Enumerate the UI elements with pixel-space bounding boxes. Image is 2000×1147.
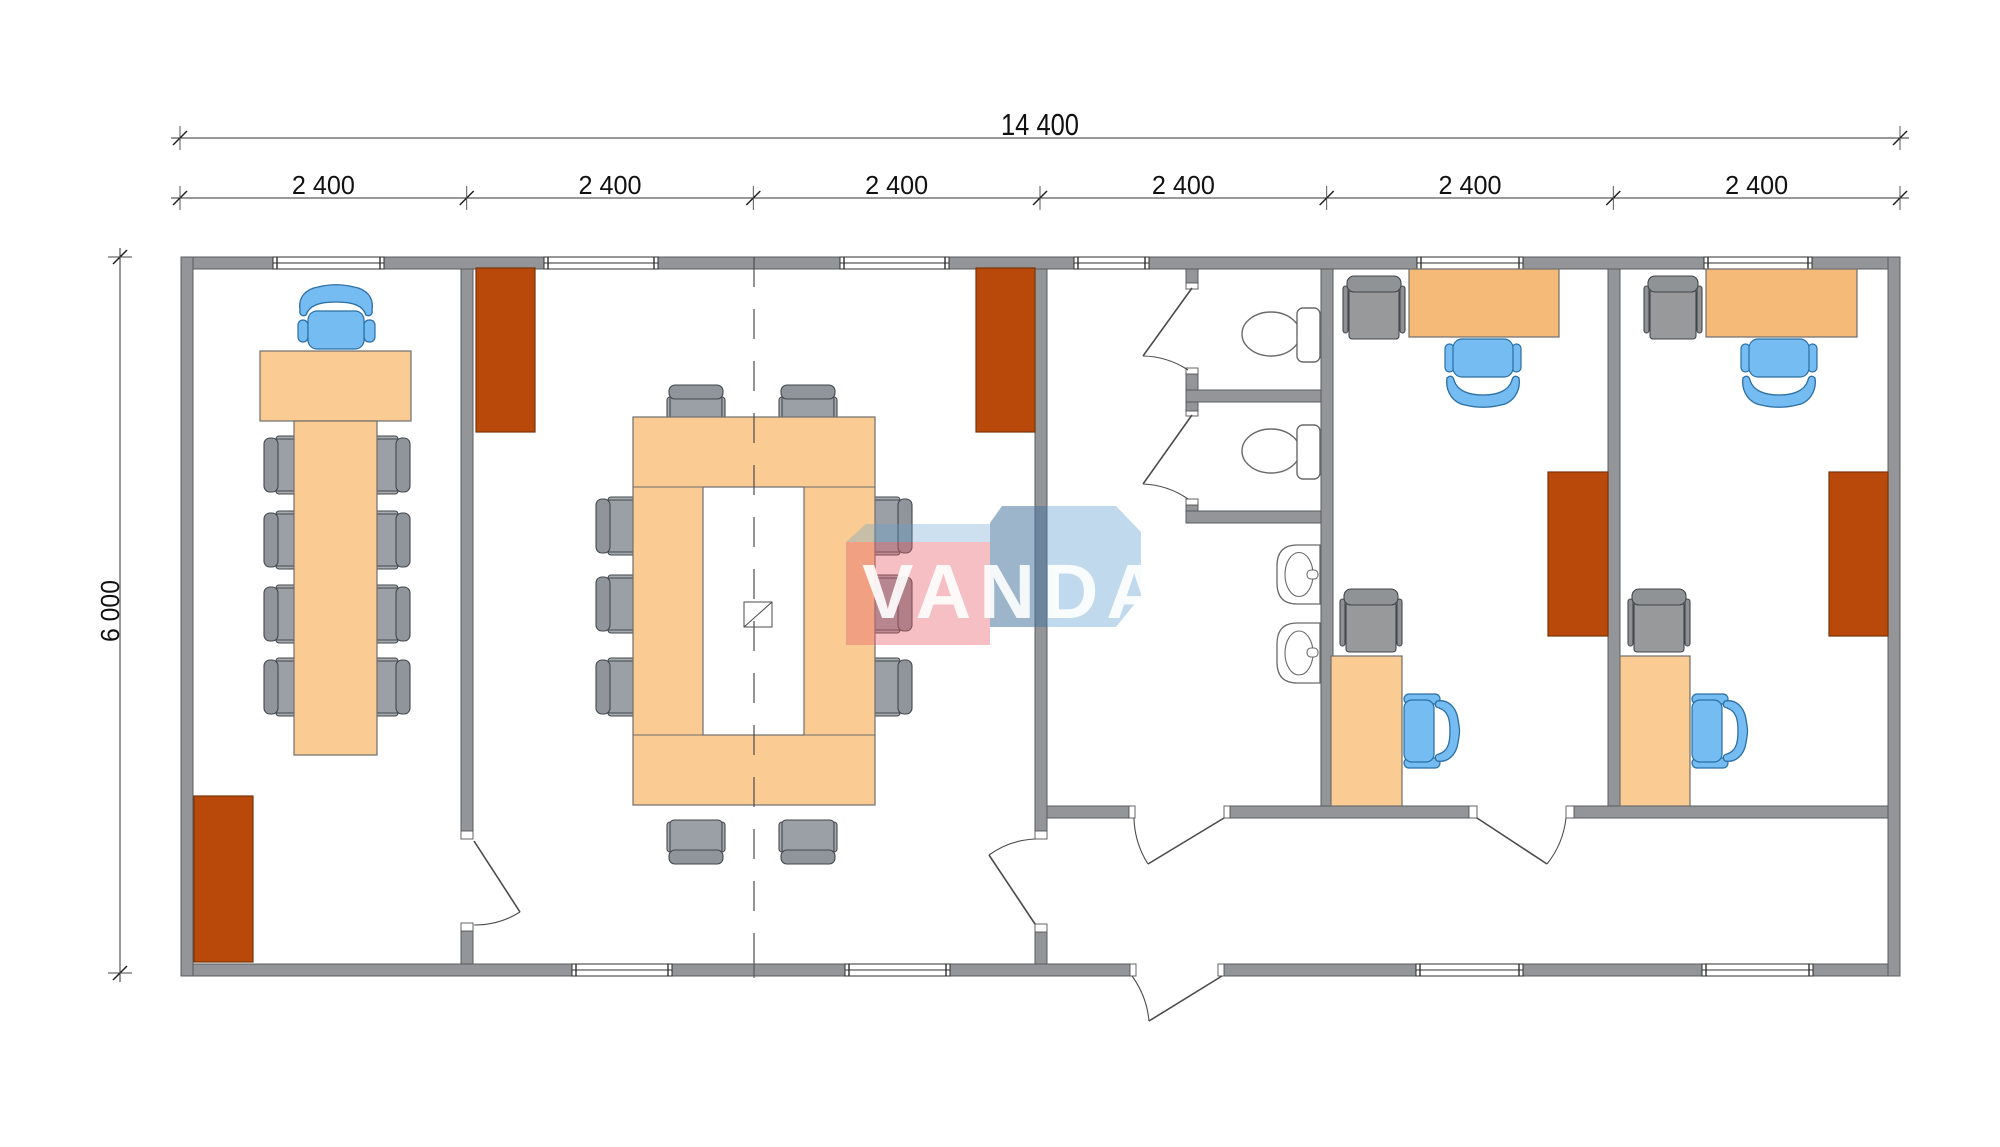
svg-text:2 400: 2 400 — [1152, 170, 1215, 200]
svg-text:2 400: 2 400 — [579, 170, 642, 200]
svg-text:2 400: 2 400 — [1439, 170, 1502, 200]
svg-text:2 400: 2 400 — [865, 170, 928, 200]
svg-text:6 000: 6 000 — [95, 580, 125, 642]
svg-text:14 400: 14 400 — [1001, 107, 1079, 142]
svg-text:2 400: 2 400 — [292, 170, 355, 200]
svg-text:2 400: 2 400 — [1725, 170, 1788, 200]
svg-text:VANDA: VANDA — [862, 549, 1162, 635]
